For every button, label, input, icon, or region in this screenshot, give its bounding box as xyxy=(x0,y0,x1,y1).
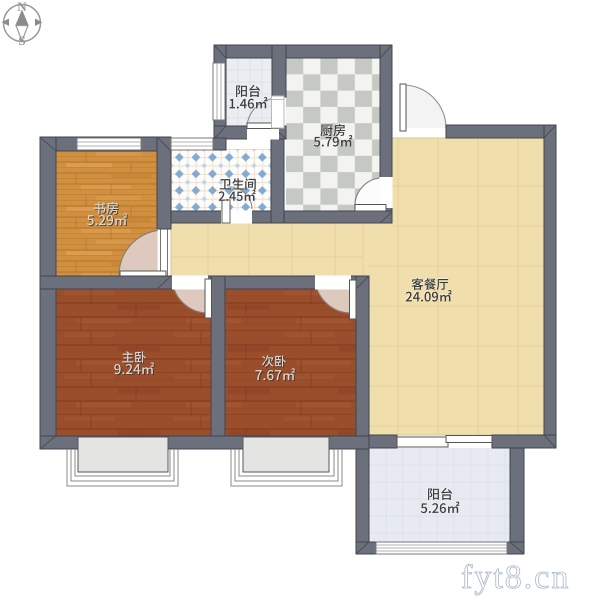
svg-text:S: S xyxy=(18,33,25,48)
svg-text:fyt8.cn: fyt8.cn xyxy=(461,559,570,596)
svg-text:N: N xyxy=(17,0,27,14)
